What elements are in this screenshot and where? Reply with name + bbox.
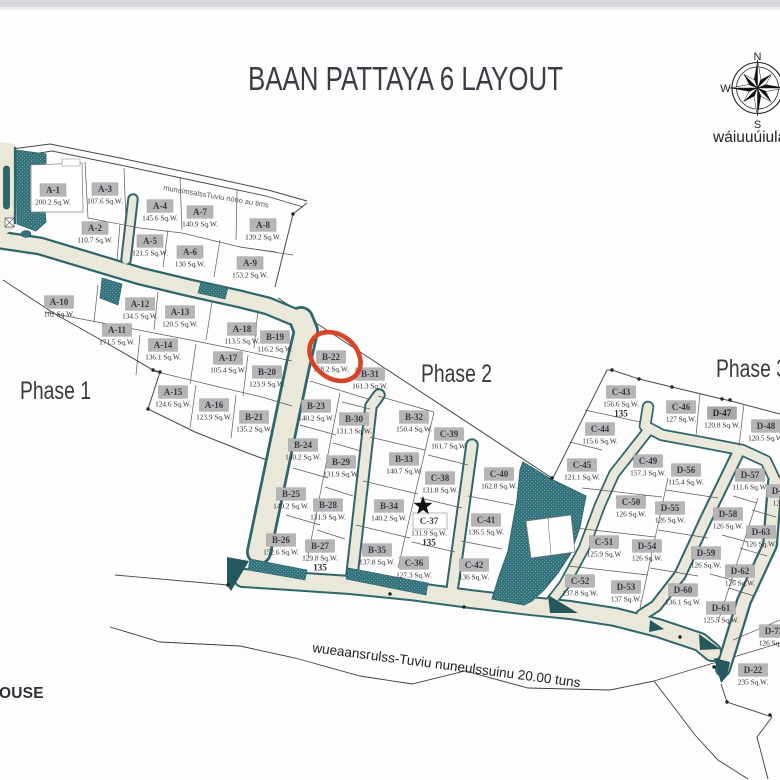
svg-text:102 Sq.W.: 102 Sq.W. bbox=[44, 310, 75, 319]
svg-text:C-52: C-52 bbox=[571, 576, 590, 586]
svg-text:126 Sq.W.: 126 Sq.W. bbox=[713, 522, 744, 531]
svg-text:C-51: C-51 bbox=[595, 537, 614, 547]
svg-text:126 Sq.W.: 126 Sq.W. bbox=[616, 510, 647, 519]
svg-text:111.6 Sq.W.: 111.6 Sq.W. bbox=[732, 483, 767, 492]
svg-text:120.5 Sq.W.: 120.5 Sq.W. bbox=[162, 320, 198, 329]
svg-text:105.4 Sq.W.: 105.4 Sq.W. bbox=[210, 366, 246, 375]
svg-text:150.4 Sq.W.: 150.4 Sq.W. bbox=[396, 425, 432, 434]
svg-text:C-45: C-45 bbox=[573, 460, 592, 470]
svg-text:Phase 2: Phase 2 bbox=[421, 360, 492, 388]
svg-text:B-28: B-28 bbox=[319, 500, 338, 510]
svg-text:C-40: C-40 bbox=[490, 469, 509, 479]
svg-text:B-23: B-23 bbox=[307, 401, 326, 411]
svg-text:A-13: A-13 bbox=[171, 307, 190, 317]
svg-text:120.8 Sq.W.: 120.8 Sq.W. bbox=[704, 421, 740, 430]
svg-text:A-17: A-17 bbox=[219, 353, 238, 363]
svg-text:C-38: C-38 bbox=[431, 473, 450, 483]
svg-text:107.6 Sq.W.: 107.6 Sq.W. bbox=[87, 197, 123, 206]
svg-text:140.7 Sq.W.: 140.7 Sq.W. bbox=[386, 467, 422, 476]
svg-text:123.9 Sq.W.: 123.9 Sq.W. bbox=[249, 380, 285, 389]
svg-text:124.6 Sq.W.: 124.6 Sq.W. bbox=[155, 400, 191, 409]
svg-text:A-6: A-6 bbox=[183, 247, 197, 257]
svg-text:Phase 3: Phase 3 bbox=[716, 355, 780, 383]
svg-text:D-54: D-54 bbox=[638, 541, 657, 551]
svg-text:137.8 Sq.W.: 137.8 Sq.W. bbox=[562, 589, 598, 598]
svg-text:127 Sq.W.: 127 Sq.W. bbox=[666, 415, 697, 424]
svg-text:152.6 Sq.W.: 152.6 Sq.W. bbox=[263, 548, 299, 557]
svg-text:A-16: A-16 bbox=[205, 400, 224, 410]
svg-text:161.3 Sq.W.: 161.3 Sq.W. bbox=[352, 382, 388, 391]
svg-text:D-47: D-47 bbox=[713, 408, 732, 418]
svg-text:A-15: A-15 bbox=[164, 387, 183, 397]
svg-text:131.9 Sq.W.: 131.9 Sq.W. bbox=[310, 513, 346, 522]
svg-text:B-24: B-24 bbox=[294, 440, 313, 450]
svg-text:A-11: A-11 bbox=[108, 325, 127, 335]
svg-text:A-3: A-3 bbox=[98, 184, 112, 194]
svg-text:135.2 Sq.W.: 135.2 Sq.W. bbox=[236, 425, 272, 434]
svg-text:A-8: A-8 bbox=[256, 220, 270, 230]
svg-text:C-43: C-43 bbox=[612, 387, 631, 397]
svg-text:115.4 Sq.W.: 115.4 Sq.W. bbox=[668, 478, 704, 487]
svg-text:D-58: D-58 bbox=[719, 509, 738, 519]
svg-text:B-26: B-26 bbox=[272, 535, 291, 545]
svg-text:A-5: A-5 bbox=[143, 236, 157, 246]
svg-text:136.5 Sq.W.: 136.5 Sq.W. bbox=[468, 528, 504, 537]
svg-text:BAAN PATTAYA 6 LAYOUT: BAAN PATTAYA 6 LAYOUT bbox=[248, 60, 563, 97]
svg-text:C-36: C-36 bbox=[405, 558, 424, 568]
svg-text:C-41: C-41 bbox=[477, 515, 496, 525]
svg-text:131.9 Sq.W.: 131.9 Sq.W. bbox=[323, 470, 359, 479]
svg-text:C-44: C-44 bbox=[591, 424, 610, 434]
svg-text:N: N bbox=[754, 51, 762, 63]
svg-text:140.2 Sq.W.: 140.2 Sq.W. bbox=[371, 514, 407, 523]
svg-text:B-22: B-22 bbox=[322, 352, 341, 362]
svg-text:115.6 Sq.W.: 115.6 Sq.W. bbox=[582, 437, 618, 446]
svg-text:126 Sq.W.: 126 Sq.W. bbox=[725, 579, 756, 588]
svg-text:200.2 Sq.W.: 200.2 Sq.W. bbox=[35, 198, 71, 207]
svg-text:D-59: D-59 bbox=[697, 548, 716, 558]
svg-text:D-55: D-55 bbox=[661, 503, 680, 513]
svg-text:123.1: 123.1 bbox=[773, 499, 780, 508]
svg-text:C-46: C-46 bbox=[672, 402, 691, 412]
svg-text:136.1 Sq.W.: 136.1 Sq.W. bbox=[665, 598, 701, 607]
svg-text:C-37: C-37 bbox=[420, 516, 439, 526]
svg-text:A-18: A-18 bbox=[233, 324, 252, 334]
svg-text:127.3 Sq.W.: 127.3 Sq.W. bbox=[396, 571, 432, 580]
svg-text:B-30: B-30 bbox=[345, 414, 364, 424]
svg-text:A-1: A-1 bbox=[46, 185, 60, 195]
svg-text:136 Sq.W.: 136 Sq.W. bbox=[459, 573, 490, 582]
svg-text:C-49: C-49 bbox=[639, 456, 658, 466]
svg-text:130 Sq.W.: 130 Sq.W. bbox=[175, 260, 206, 269]
svg-text:A-12: A-12 bbox=[131, 299, 150, 309]
svg-text:125.9 Sq.W: 125.9 Sq.W bbox=[587, 550, 622, 559]
svg-text:131.8 Sq.W.: 131.8 Sq.W. bbox=[422, 486, 458, 495]
svg-text:156.6 Sq.W.: 156.6 Sq.W. bbox=[603, 400, 639, 409]
svg-text:171.5 Sq.W.: 171.5 Sq.W. bbox=[99, 338, 135, 347]
svg-text:136.1 Sq.W.: 136.1 Sq.W. bbox=[145, 353, 181, 362]
svg-text:140.2 Sq.W.: 140.2 Sq.W. bbox=[298, 414, 334, 423]
svg-text:135: 135 bbox=[614, 409, 628, 419]
svg-text:A-10: A-10 bbox=[50, 297, 69, 307]
svg-text:B-34: B-34 bbox=[380, 501, 399, 511]
svg-text:C-50: C-50 bbox=[622, 497, 641, 507]
svg-text:135: 135 bbox=[422, 538, 436, 548]
svg-text:B-25: B-25 bbox=[282, 489, 301, 499]
svg-text:D-63: D-63 bbox=[752, 527, 771, 537]
svg-text:B-20: B-20 bbox=[258, 367, 277, 377]
svg-text:D-61: D-61 bbox=[712, 603, 731, 613]
svg-text:W: W bbox=[720, 83, 731, 95]
svg-text:126 Sq.W.: 126 Sq.W. bbox=[691, 561, 722, 570]
svg-text:C-42: C-42 bbox=[465, 560, 484, 570]
svg-text:140.2 Sq.W.: 140.2 Sq.W. bbox=[273, 502, 309, 511]
svg-text:140.2 Sq.W.: 140.2 Sq.W. bbox=[285, 453, 321, 462]
svg-text:139.2 Sq.W.: 139.2 Sq.W. bbox=[245, 233, 281, 242]
svg-text:135: 135 bbox=[313, 563, 327, 573]
svg-text:Phase 1: Phase 1 bbox=[20, 377, 91, 405]
svg-text:D-57: D-57 bbox=[741, 470, 760, 480]
svg-text:D-62: D-62 bbox=[731, 566, 750, 576]
svg-text:120.5 Sq.W.: 120.5 Sq.W. bbox=[748, 434, 780, 443]
svg-text:A-14: A-14 bbox=[154, 340, 173, 350]
svg-text:B-21: B-21 bbox=[245, 412, 264, 422]
svg-text:D-72: D-72 bbox=[765, 626, 780, 636]
svg-text:A-2: A-2 bbox=[88, 223, 102, 233]
svg-text:131.9 Sq.W.: 131.9 Sq.W. bbox=[411, 529, 447, 538]
svg-text:235 Sq.W.: 235 Sq.W. bbox=[738, 678, 769, 687]
svg-text:129.8 Sq.W.: 129.8 Sq.W. bbox=[302, 554, 338, 563]
svg-text:A-7: A-7 bbox=[193, 207, 207, 217]
svg-text:D-60: D-60 bbox=[674, 585, 693, 595]
svg-text:125.5 Sq.W.: 125.5 Sq.W. bbox=[703, 616, 739, 625]
svg-text:B-19: B-19 bbox=[266, 332, 285, 342]
svg-text:153.2 Sq.W.: 153.2 Sq.W. bbox=[232, 271, 268, 280]
svg-text:145.6 Sq.W.: 145.6 Sq.W. bbox=[142, 214, 178, 223]
svg-text:113.5 Sq.W.: 113.5 Sq.W. bbox=[224, 337, 260, 346]
svg-text:126 Sq.W.: 126 Sq.W. bbox=[746, 540, 777, 549]
svg-text:D-49: D-49 bbox=[772, 486, 780, 496]
svg-text:OUSE: OUSE bbox=[0, 685, 44, 702]
svg-text:134.5 Sq.W.: 134.5 Sq.W. bbox=[122, 312, 158, 321]
svg-text:B-32: B-32 bbox=[405, 412, 424, 422]
svg-text:B-29: B-29 bbox=[332, 457, 351, 467]
svg-text:D-48: D-48 bbox=[757, 421, 776, 431]
svg-text:B-27: B-27 bbox=[311, 541, 330, 551]
svg-text:wáiuuúiulasuuù: wáiuuúiulasuuù bbox=[712, 129, 780, 146]
svg-text:A-9: A-9 bbox=[243, 258, 257, 268]
svg-text:B-33: B-33 bbox=[395, 454, 414, 464]
svg-text:110.7 Sq.W.: 110.7 Sq.W. bbox=[77, 236, 113, 245]
svg-text:140.9 Sq.W.: 140.9 Sq.W. bbox=[182, 220, 218, 229]
svg-text:A-4: A-4 bbox=[153, 201, 167, 211]
svg-text:131.3 Sq.W.: 131.3 Sq.W. bbox=[336, 427, 372, 436]
svg-text:C-39: C-39 bbox=[440, 429, 459, 439]
svg-text:157.3 Sq.W.: 157.3 Sq.W. bbox=[630, 469, 666, 478]
svg-text:B-31: B-31 bbox=[361, 369, 380, 379]
svg-text:D-56: D-56 bbox=[677, 465, 696, 475]
svg-text:162.8 Sq.W.: 162.8 Sq.W. bbox=[481, 482, 517, 491]
svg-text:137.8 Sq.W.: 137.8 Sq.W. bbox=[359, 558, 395, 567]
svg-text:161.7 Sq.W.: 161.7 Sq.W. bbox=[431, 442, 467, 451]
svg-text:126 Sq.W.: 126 Sq.W. bbox=[759, 639, 780, 648]
svg-text:B-35: B-35 bbox=[368, 545, 387, 555]
svg-text:123.9 Sq.W.: 123.9 Sq.W. bbox=[196, 413, 232, 422]
svg-text:126 Sq.W.: 126 Sq.W. bbox=[632, 554, 663, 563]
svg-text:D-53: D-53 bbox=[617, 582, 636, 592]
svg-text:121.5 Sq.W.: 121.5 Sq.W. bbox=[132, 249, 168, 258]
svg-text:126 Sq.W.: 126 Sq.W. bbox=[655, 516, 686, 525]
svg-text:D-22: D-22 bbox=[744, 665, 763, 675]
svg-text:121.1 Sq.W.: 121.1 Sq.W. bbox=[564, 473, 600, 482]
svg-text:116.2 Sq.W.: 116.2 Sq.W. bbox=[257, 345, 293, 354]
svg-text:137 Sq.W.: 137 Sq.W. bbox=[611, 595, 642, 604]
